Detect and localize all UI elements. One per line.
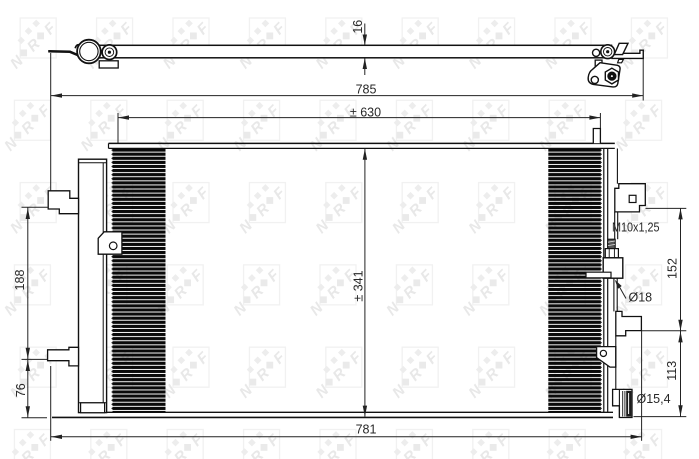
svg-text:152: 152 (665, 258, 679, 279)
svg-text:16: 16 (351, 20, 365, 34)
svg-text:Ø18: Ø18 (629, 291, 653, 305)
svg-text:Ø15,4: Ø15,4 (637, 392, 671, 406)
svg-text:785: 785 (356, 83, 377, 97)
svg-text:188: 188 (13, 270, 27, 291)
svg-text:76: 76 (14, 383, 28, 397)
svg-text:M10x1,25: M10x1,25 (612, 221, 660, 235)
svg-text:± 341: ± 341 (352, 270, 366, 301)
svg-text:113: 113 (665, 361, 679, 381)
svg-text:781: 781 (356, 423, 377, 437)
svg-text:± 630: ± 630 (350, 105, 381, 119)
